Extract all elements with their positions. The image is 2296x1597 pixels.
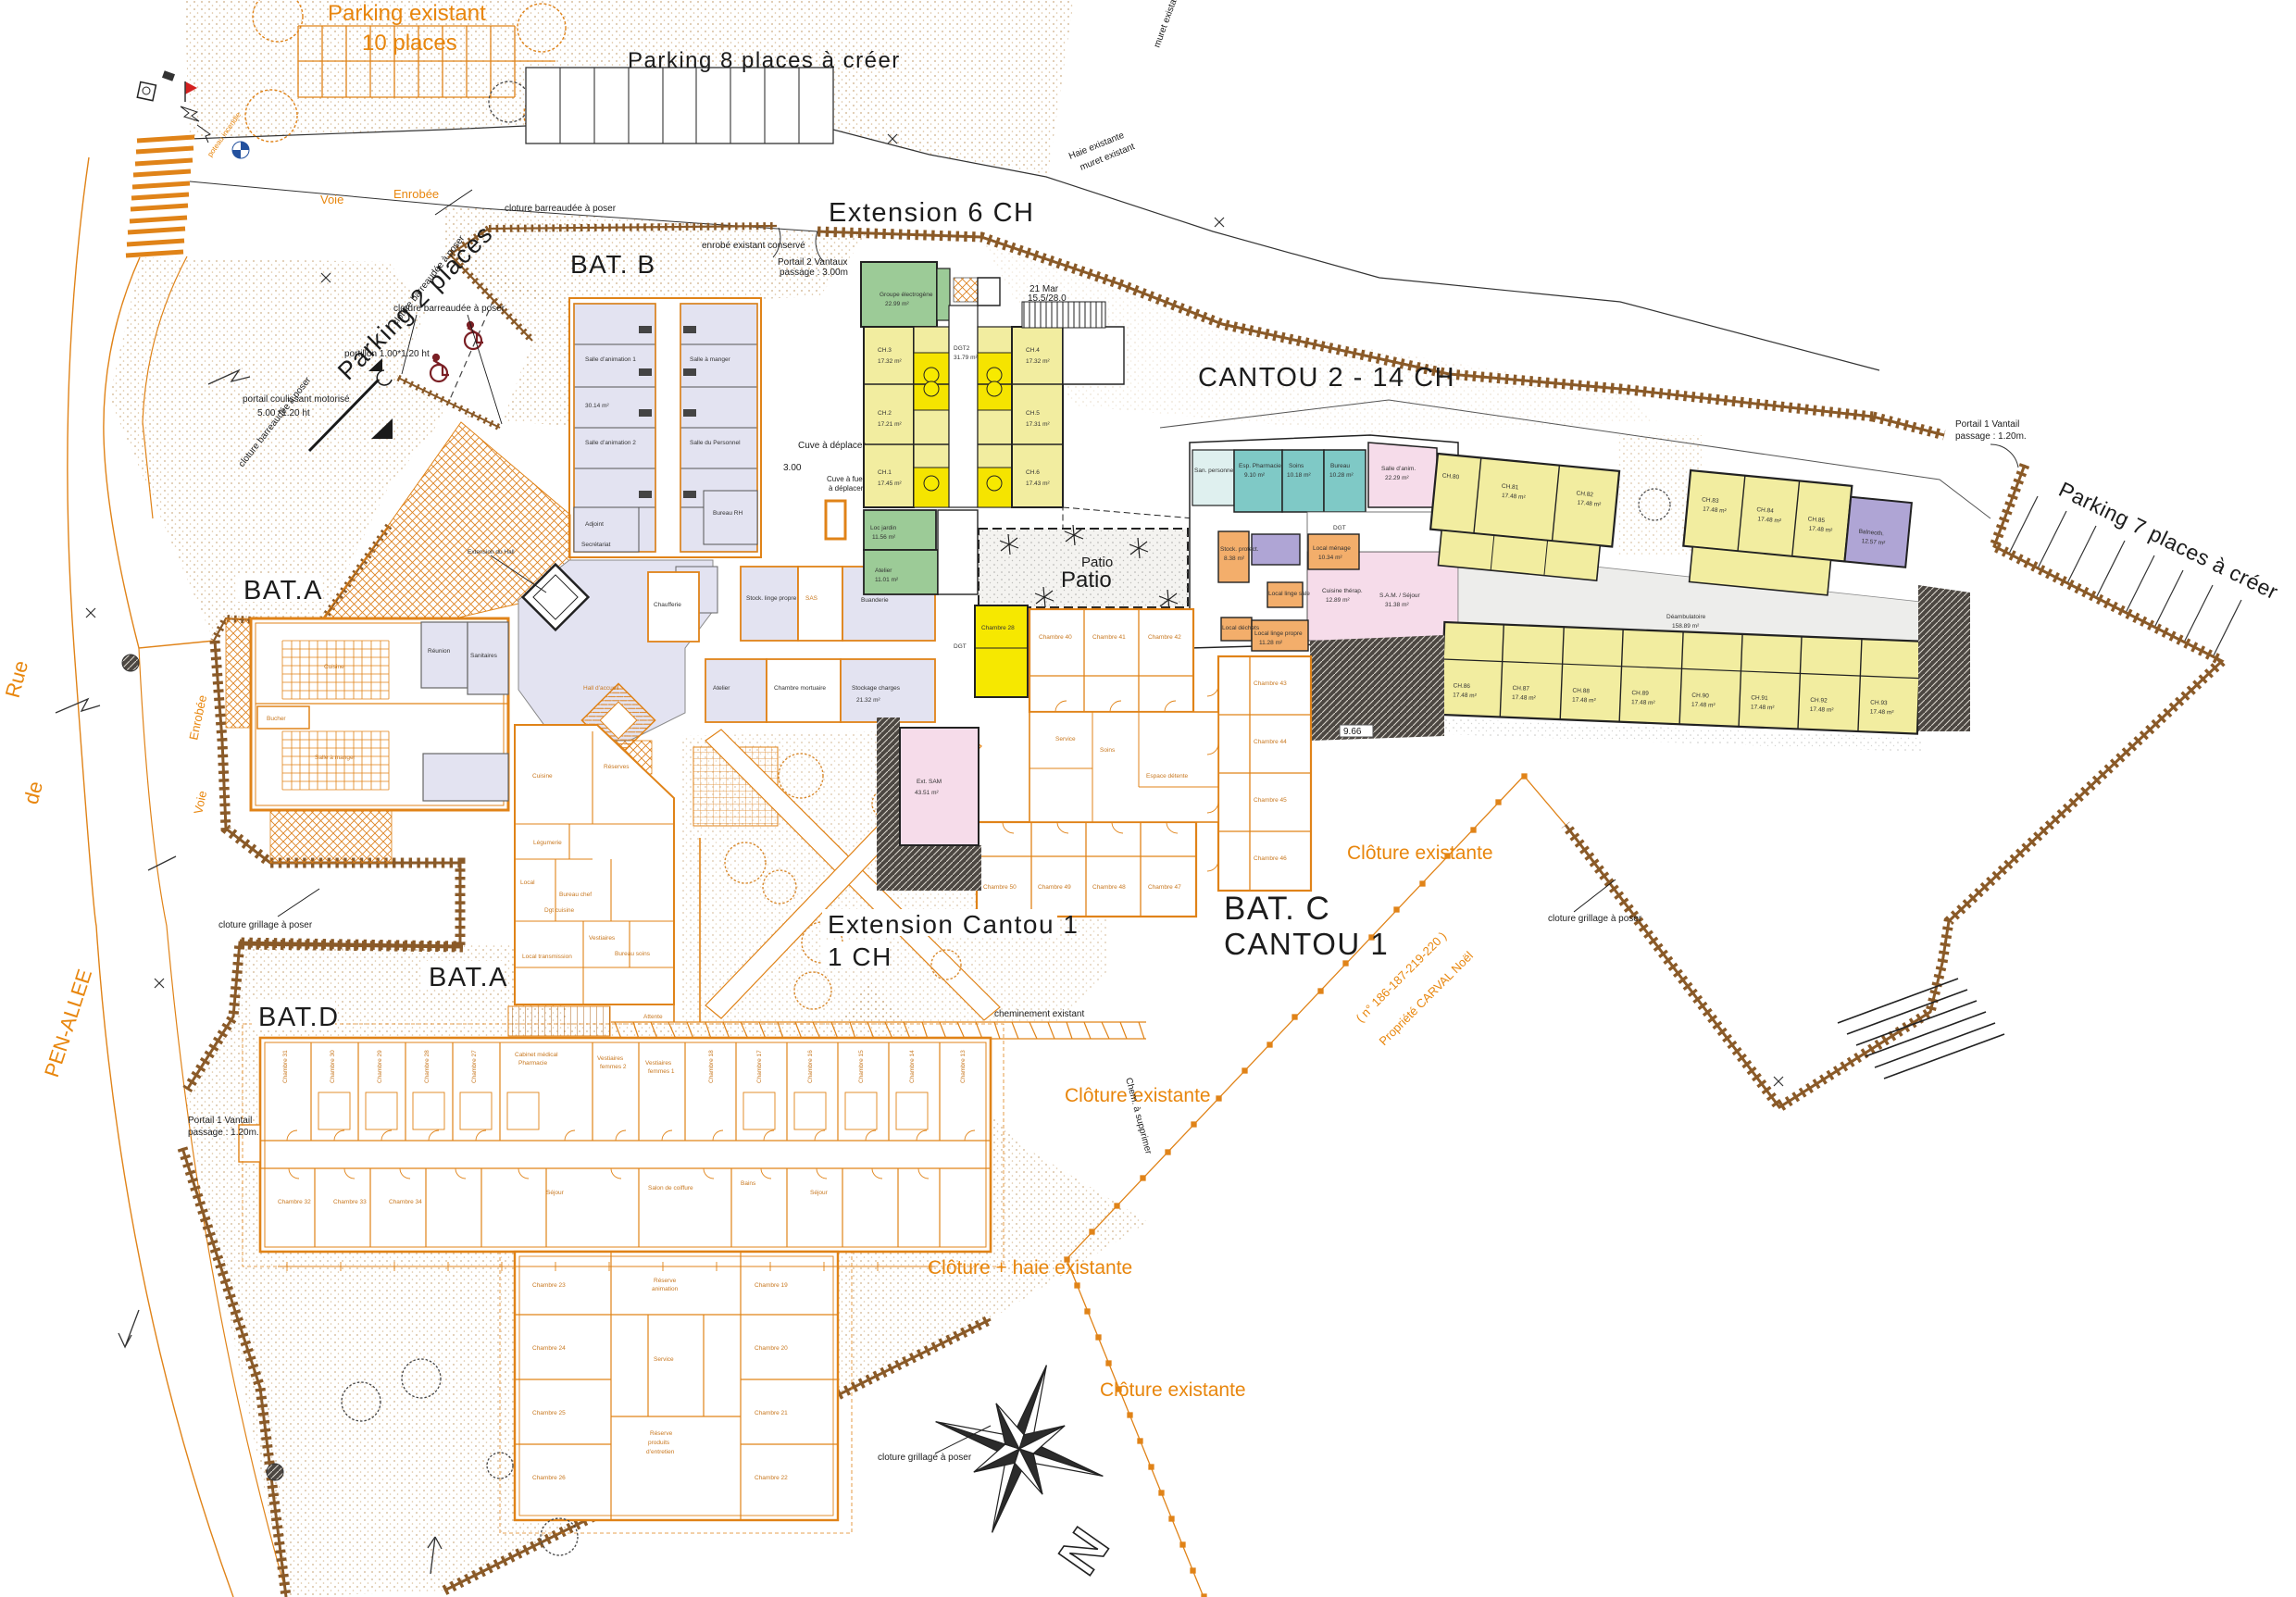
svg-text:Chambre mortuaire: Chambre mortuaire: [774, 685, 826, 692]
svg-text:17.48 m²: 17.48 m²: [1870, 709, 1895, 717]
svg-text:passage : 1.20m.: passage : 1.20m.: [188, 1128, 259, 1138]
svg-text:Salon de coiffure: Salon de coiffure: [648, 1185, 693, 1192]
svg-text:CH.93: CH.93: [1870, 700, 1888, 707]
svg-text:17.48 m²: 17.48 m²: [1631, 699, 1656, 706]
svg-text:Clôture existante: Clôture existante: [1347, 842, 1493, 864]
svg-text:11.28 m²: 11.28 m²: [1259, 640, 1283, 646]
svg-text:Service: Service: [1055, 736, 1076, 742]
svg-text:Chambre 48: Chambre 48: [1092, 884, 1126, 891]
svg-text:BAT. C: BAT. C: [1224, 891, 1330, 927]
svg-text:Chambre 47: Chambre 47: [1148, 884, 1181, 891]
svg-text:Secrétariat: Secrétariat: [581, 542, 611, 548]
svg-text:San. personnel: San. personnel: [1194, 468, 1235, 474]
svg-text:Ext. SAM: Ext. SAM: [917, 779, 942, 785]
svg-text:Chambre 17: Chambre 17: [756, 1050, 763, 1083]
svg-text:10.28 m²: 10.28 m²: [1329, 472, 1354, 479]
svg-text:Chambre 44: Chambre 44: [1254, 739, 1287, 745]
svg-text:Chambre 32: Chambre 32: [278, 1199, 311, 1205]
svg-text:17.48 m²: 17.48 m²: [1691, 702, 1716, 709]
svg-text:Local transmission: Local transmission: [522, 954, 572, 960]
svg-text:Vestiaires: Vestiaires: [645, 1060, 672, 1067]
svg-text:Bureau chef: Bureau chef: [559, 892, 592, 898]
svg-text:Loc jardin: Loc jardin: [870, 525, 897, 531]
svg-text:17.32 m²: 17.32 m²: [1026, 358, 1050, 365]
svg-text:Chambre 50: Chambre 50: [983, 884, 1017, 891]
svg-text:11.01 m²: 11.01 m²: [875, 577, 899, 583]
svg-text:Chambre 14: Chambre 14: [909, 1050, 916, 1083]
svg-text:Chambre 19: Chambre 19: [755, 1282, 788, 1289]
svg-text:Cuisine thérap.: Cuisine thérap.: [1322, 588, 1363, 594]
svg-text:Bureau RH: Bureau RH: [713, 510, 742, 517]
svg-text:Chambre 21: Chambre 21: [755, 1410, 788, 1416]
svg-text:Local linge propre: Local linge propre: [1254, 630, 1303, 637]
svg-text:CH.89: CH.89: [1631, 690, 1649, 697]
svg-text:Chambre 49: Chambre 49: [1038, 884, 1071, 891]
svg-text:animation: animation: [652, 1286, 679, 1292]
svg-text:CH.6: CH.6: [1026, 469, 1040, 476]
svg-text:femmes 2: femmes 2: [600, 1064, 627, 1070]
svg-text:Buanderie: Buanderie: [861, 597, 889, 604]
svg-text:CH.88: CH.88: [1572, 688, 1590, 695]
svg-text:Service: Service: [654, 1356, 674, 1363]
svg-text:Patio: Patio: [1061, 568, 1112, 593]
svg-text:BAT. B: BAT. B: [570, 250, 656, 279]
svg-text:Chambre 16: Chambre 16: [807, 1050, 814, 1083]
svg-text:17.48 m²: 17.48 m²: [1512, 694, 1537, 702]
svg-text:Groupe électrogène: Groupe électrogène: [880, 292, 933, 298]
svg-text:Salle à manger: Salle à manger: [690, 356, 731, 363]
svg-text:15.5/28.0: 15.5/28.0: [1028, 293, 1067, 304]
svg-text:Chambre 33: Chambre 33: [333, 1199, 367, 1205]
svg-text:Salle d’animation 2: Salle d’animation 2: [585, 440, 636, 446]
svg-text:CANTOU 1: CANTOU 1: [1224, 927, 1389, 961]
svg-text:Chaufferie: Chaufferie: [654, 602, 681, 608]
svg-text:SAS: SAS: [805, 595, 818, 602]
svg-text:Extension du Hall: Extension du Hall: [468, 549, 515, 555]
svg-text:Enrobée: Enrobée: [393, 187, 439, 201]
svg-text:Soins: Soins: [1289, 463, 1304, 469]
svg-text:CANTOU 2 - 14 CH: CANTOU 2 - 14 CH: [1198, 363, 1455, 393]
svg-text:17.21 m²: 17.21 m²: [878, 421, 902, 428]
svg-text:Chambre 28: Chambre 28: [981, 625, 1015, 631]
svg-text:Chambre 15: Chambre 15: [858, 1050, 865, 1083]
svg-text:Chambre 28: Chambre 28: [424, 1050, 430, 1083]
svg-text:portillon 1.00*1.20 ht: portillon 1.00*1.20 ht: [344, 349, 430, 359]
svg-text:Voie: Voie: [320, 193, 343, 206]
svg-text:Chambre 43: Chambre 43: [1254, 680, 1287, 687]
svg-text:Réserve: Réserve: [654, 1278, 677, 1284]
svg-text:Chambre 18: Chambre 18: [708, 1050, 715, 1083]
svg-text:DGT: DGT: [1333, 525, 1346, 531]
svg-text:10 places: 10 places: [362, 31, 457, 56]
svg-text:158.89 m²: 158.89 m²: [1672, 623, 1700, 630]
svg-text:9.66: 9.66: [1343, 727, 1362, 737]
svg-text:17.43 m²: 17.43 m²: [1026, 480, 1050, 487]
svg-text:Vestiaires: Vestiaires: [597, 1055, 624, 1062]
svg-text:Chambre 34: Chambre 34: [389, 1199, 422, 1205]
svg-text:10.18 m²: 10.18 m²: [1287, 472, 1311, 479]
svg-text:cloture barreaudée à poser: cloture barreaudée à poser: [505, 204, 617, 214]
svg-text:produits: produits: [648, 1440, 670, 1446]
svg-text:17.48 m²: 17.48 m²: [1572, 697, 1597, 705]
svg-text:Cuve à fuel: Cuve à fuel: [827, 475, 865, 483]
svg-text:femmes 1: femmes 1: [648, 1068, 675, 1075]
svg-text:43.51 m²: 43.51 m²: [915, 790, 939, 796]
svg-text:Extension Cantou 1: Extension Cantou 1: [828, 910, 1079, 939]
svg-text:Soins: Soins: [1100, 747, 1116, 754]
svg-text:Chambre 25: Chambre 25: [532, 1410, 566, 1416]
svg-text:Cuisine: Cuisine: [532, 773, 553, 780]
svg-text:Salle du Personnel: Salle du Personnel: [690, 440, 741, 446]
svg-text:1 CH: 1 CH: [828, 942, 892, 971]
svg-text:17.32 m²: 17.32 m²: [878, 358, 902, 365]
svg-text:21.32 m²: 21.32 m²: [856, 697, 880, 704]
svg-text:3.00: 3.00: [783, 463, 802, 473]
svg-text:à déplacer: à déplacer: [829, 484, 864, 493]
svg-text:BAT.D: BAT.D: [258, 1003, 340, 1032]
svg-text:Local ménage: Local ménage: [1313, 545, 1351, 552]
svg-text:Réserve: Réserve: [650, 1430, 673, 1437]
svg-text:CH.87: CH.87: [1512, 685, 1529, 692]
svg-text:17.48 m²: 17.48 m²: [1453, 692, 1478, 699]
svg-text:Bureau soins: Bureau soins: [615, 951, 651, 957]
svg-text:Chambre 26: Chambre 26: [532, 1475, 566, 1481]
svg-text:Clôture existante: Clôture existante: [1100, 1379, 1246, 1401]
svg-text:Local: Local: [520, 880, 535, 886]
svg-text:CH.3: CH.3: [878, 347, 892, 354]
svg-text:CH.1: CH.1: [878, 469, 892, 476]
svg-text:cloture grillage à poser: cloture grillage à poser: [878, 1453, 972, 1463]
svg-text:BAT.A: BAT.A: [429, 963, 508, 992]
svg-text:CH.5: CH.5: [1026, 410, 1040, 417]
svg-text:Chambre 40: Chambre 40: [1039, 634, 1072, 641]
svg-text:17.48 m²: 17.48 m²: [1751, 704, 1776, 711]
svg-text:Portail 2 Vantaux: Portail 2 Vantaux: [778, 257, 847, 268]
svg-text:Chambre 20: Chambre 20: [755, 1345, 788, 1352]
svg-text:CH.91: CH.91: [1751, 694, 1768, 702]
svg-text:Réunion: Réunion: [428, 648, 451, 655]
svg-text:Cabinet médical: Cabinet médical: [515, 1052, 558, 1058]
svg-text:11.56 m²: 11.56 m²: [872, 534, 896, 541]
svg-text:Salle d’animation 1: Salle d’animation 1: [585, 356, 636, 363]
svg-text:cloture barreaudée à poser: cloture barreaudée à poser: [393, 304, 505, 314]
svg-text:Chambre 46: Chambre 46: [1254, 855, 1287, 862]
svg-text:DGT2: DGT2: [954, 345, 970, 352]
svg-text:Chambre 41: Chambre 41: [1092, 634, 1126, 641]
svg-text:Sanitaires: Sanitaires: [470, 653, 498, 659]
svg-text:Bains: Bains: [741, 1180, 756, 1187]
svg-text:9.10 m²: 9.10 m²: [1244, 472, 1266, 479]
svg-text:Bureau: Bureau: [1330, 463, 1350, 469]
svg-text:Cuve à déplacer: Cuve à déplacer: [798, 441, 866, 451]
svg-text:Esp. Pharmacie: Esp. Pharmacie: [1239, 463, 1281, 469]
svg-text:22.99 m²: 22.99 m²: [885, 301, 909, 307]
svg-text:BAT.A: BAT.A: [243, 576, 323, 605]
svg-text:cloture grillage à poser: cloture grillage à poser: [1548, 914, 1642, 924]
svg-text:Dgt cuisine: Dgt cuisine: [544, 907, 575, 914]
svg-text:31.79 m²: 31.79 m²: [954, 355, 978, 361]
svg-text:Stock. linge propre: Stock. linge propre: [746, 595, 797, 602]
svg-text:12.89 m²: 12.89 m²: [1326, 597, 1350, 604]
svg-text:Chambre 30: Chambre 30: [330, 1050, 336, 1083]
svg-text:Chambre 29: Chambre 29: [377, 1050, 383, 1083]
svg-text:DGT: DGT: [954, 643, 967, 650]
svg-text:Extension 6 CH: Extension 6 CH: [829, 198, 1035, 228]
svg-text:Chambre 24: Chambre 24: [532, 1345, 566, 1352]
svg-text:Chambre 31: Chambre 31: [282, 1050, 289, 1083]
svg-text:Espace détente: Espace détente: [1146, 773, 1189, 780]
svg-text:17.45 m²: 17.45 m²: [878, 480, 902, 487]
svg-text:Portail 1 Vantail: Portail 1 Vantail: [188, 1116, 252, 1126]
svg-text:10.34 m²: 10.34 m²: [1318, 555, 1342, 561]
svg-text:Chambre 13: Chambre 13: [960, 1050, 967, 1083]
svg-text:d’entretien: d’entretien: [646, 1449, 675, 1455]
svg-text:Vestiaires: Vestiaires: [589, 935, 616, 942]
svg-text:CH.2: CH.2: [878, 410, 892, 417]
svg-text:enrobé existant conservé: enrobé existant conservé: [702, 241, 805, 251]
svg-text:Cuisine: Cuisine: [324, 664, 344, 670]
svg-text:Clôture + haie existante: Clôture + haie existante: [928, 1257, 1132, 1279]
svg-text:Hall d’accueil: Hall d’accueil: [583, 685, 619, 692]
svg-text:Attente: Attente: [643, 1014, 663, 1020]
svg-text:Chambre 27: Chambre 27: [471, 1050, 478, 1083]
svg-text:Séjour: Séjour: [810, 1190, 829, 1196]
svg-text:passage : 3.00m: passage : 3.00m: [780, 268, 848, 278]
svg-text:S.A.M. / Séjour: S.A.M. / Séjour: [1379, 593, 1421, 599]
svg-text:31.38 m²: 31.38 m²: [1385, 602, 1409, 608]
svg-text:Pharmacie: Pharmacie: [518, 1060, 547, 1067]
svg-text:Chambre 22: Chambre 22: [755, 1475, 788, 1481]
svg-text:Parking 8 places à créer: Parking 8 places à créer: [628, 48, 901, 73]
svg-text:Atelier: Atelier: [713, 685, 730, 692]
svg-text:Atelier: Atelier: [875, 568, 892, 574]
svg-text:Séjour: Séjour: [546, 1190, 565, 1196]
svg-text:Déambulatoire: Déambulatoire: [1666, 614, 1706, 620]
svg-text:Local linge sale: Local linge sale: [1268, 591, 1310, 597]
svg-text:Adjoint: Adjoint: [585, 521, 604, 528]
svg-text:30.14 m²: 30.14 m²: [585, 403, 609, 409]
svg-text:cheminement existant: cheminement existant: [994, 1009, 1084, 1019]
svg-text:CH.4: CH.4: [1026, 347, 1040, 354]
svg-text:17.48 m²: 17.48 m²: [1810, 706, 1835, 714]
svg-text:CH.86: CH.86: [1453, 682, 1470, 690]
svg-text:Local déchets: Local déchets: [1222, 625, 1260, 631]
svg-text:8.38 m²: 8.38 m²: [1224, 555, 1245, 562]
svg-text:CH.92: CH.92: [1810, 697, 1828, 705]
svg-text:Salle à manger: Salle à manger: [315, 755, 356, 761]
svg-text:passage : 1.20m.: passage : 1.20m.: [1955, 431, 2027, 442]
svg-text:22.29 m²: 22.29 m²: [1385, 475, 1409, 481]
svg-text:Bucher: Bucher: [267, 716, 286, 722]
svg-text:cloture grillage à poser: cloture grillage à poser: [218, 920, 313, 930]
svg-text:Parking existant: Parking existant: [328, 1, 486, 26]
svg-text:CH.90: CH.90: [1691, 692, 1709, 700]
svg-text:Légumerie: Légumerie: [533, 840, 562, 846]
svg-text:Chambre 23: Chambre 23: [532, 1282, 566, 1289]
svg-text:Salle d’anim.: Salle d’anim.: [1381, 466, 1416, 472]
svg-text:Stockage charges: Stockage charges: [852, 685, 901, 692]
svg-text:Portail 1 Vantail: Portail 1 Vantail: [1955, 419, 2019, 430]
svg-text:Chambre 42: Chambre 42: [1148, 634, 1181, 641]
svg-text:Réserves: Réserves: [604, 764, 630, 770]
svg-text:17.31 m²: 17.31 m²: [1026, 421, 1050, 428]
svg-text:Chambre 45: Chambre 45: [1254, 797, 1287, 804]
svg-text:Stock. protect.: Stock. protect.: [1220, 546, 1259, 553]
